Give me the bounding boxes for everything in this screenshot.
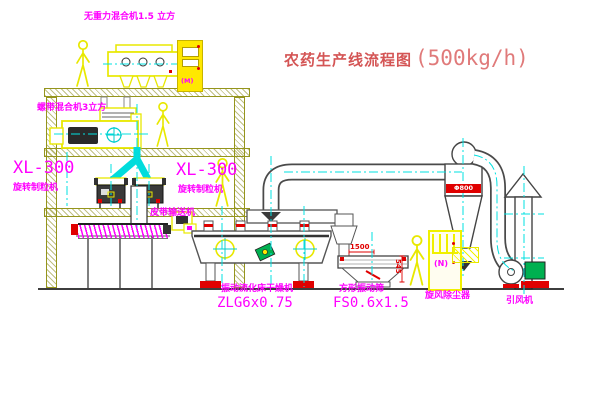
label-fan: 引风机 xyxy=(506,297,533,306)
worker-figure-floor2 xyxy=(157,103,169,146)
fluid-bed-dryer-drawing xyxy=(192,221,331,288)
cyclone-discharge-valve xyxy=(452,247,479,263)
label-mid-mixer: 螺带混合机3立方 xyxy=(37,104,106,113)
label-granulator-right: 旋转制粒机 xyxy=(178,186,223,195)
cabinet-meter-mark: (M) xyxy=(181,77,193,85)
label-belt-conveyor: 皮带输送机 xyxy=(150,209,195,218)
cabinet-meter-mark: (N) xyxy=(434,259,448,268)
label-granulator-left: 旋转制粒机 xyxy=(13,184,58,193)
label-screen-model: FS0.6x1.5 xyxy=(333,296,409,310)
discharge-column xyxy=(131,186,147,224)
vibrating-screen-drawing xyxy=(331,214,408,287)
label-cyclone: 旋风除尘器 xyxy=(425,292,470,301)
diagram-title: 农药生产线流程图 (500kg/h) xyxy=(284,46,529,70)
worker-figure-roof xyxy=(77,41,89,86)
conveyor-frame xyxy=(76,236,170,288)
cyclone-diameter-band: Φ800 xyxy=(446,184,481,193)
mid-mixer-drawing xyxy=(50,108,141,148)
indicator-light xyxy=(197,67,200,70)
cabinet-window xyxy=(182,47,199,57)
conveyor-motor xyxy=(163,225,171,234)
label-granulator-right-model: XL-300 xyxy=(176,162,237,179)
dimension-screen-height: 545 xyxy=(394,259,401,274)
y-feed-pipe xyxy=(111,147,149,181)
conveyor-drive xyxy=(71,224,78,235)
label-dryer-model: ZLG6x0.75 xyxy=(217,296,293,310)
suction-hood xyxy=(247,210,337,223)
label-screen: 方形振动筛 xyxy=(339,285,384,294)
belt-conveyor xyxy=(78,223,168,239)
indicator-light xyxy=(452,242,455,245)
title-text: 农药生产线流程图 xyxy=(284,49,412,70)
flow-diagram-canvas: (M) (N) Φ800 农药生产线流程图 (500kg/h) 无重力混合机1.… xyxy=(0,0,600,403)
top-mixer-drawing xyxy=(108,45,186,87)
title-capacity: (500kg/h) xyxy=(415,46,529,70)
label-granulator-left-model: XL-300 xyxy=(13,160,74,177)
control-cabinet-top: (M) xyxy=(177,40,203,92)
indicator-light xyxy=(197,45,200,48)
dimension-screen-width: 1500 xyxy=(350,244,369,251)
cabinet-window xyxy=(182,59,199,67)
exhaust-duct xyxy=(271,172,448,212)
worker-figure-ground xyxy=(411,236,424,285)
label-dryer: 振动流化床干燥机 xyxy=(221,285,293,294)
label-top-mixer: 无重力混合机1.5 立方 xyxy=(84,13,175,22)
